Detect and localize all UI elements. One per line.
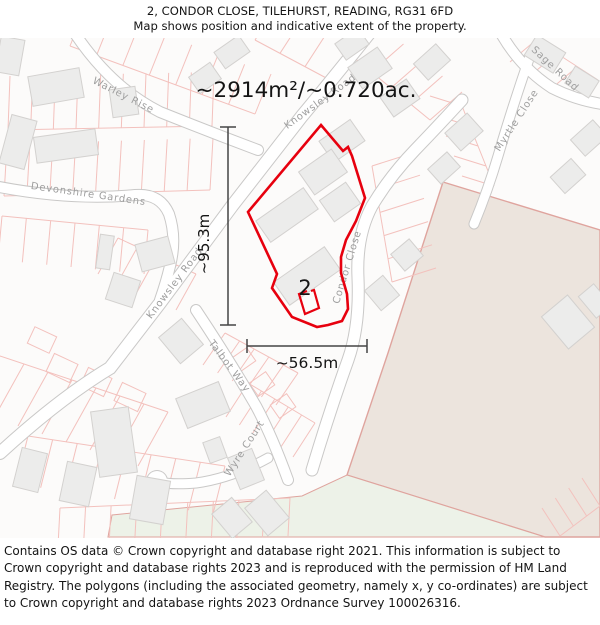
width-dimension-label: ~56.5m <box>276 354 339 372</box>
page-title: 2, CONDOR CLOSE, TILEHURST, READING, RG3… <box>0 4 600 19</box>
property-number-label: 2 <box>298 276 311 300</box>
map: Warley RiseDevonshire GardensKnowsley Ro… <box>0 38 600 538</box>
height-dimension-label: ~95.3m <box>195 214 213 275</box>
area-label: ~2914m²/~0.720ac. <box>196 78 417 103</box>
map-canvas: Warley RiseDevonshire GardensKnowsley Ro… <box>0 38 600 538</box>
copyright-footer: Contains OS data © Crown copyright and d… <box>0 538 600 613</box>
page-subtitle: Map shows position and indicative extent… <box>0 19 600 34</box>
header: 2, CONDOR CLOSE, TILEHURST, READING, RG3… <box>0 0 600 34</box>
building <box>129 475 170 524</box>
